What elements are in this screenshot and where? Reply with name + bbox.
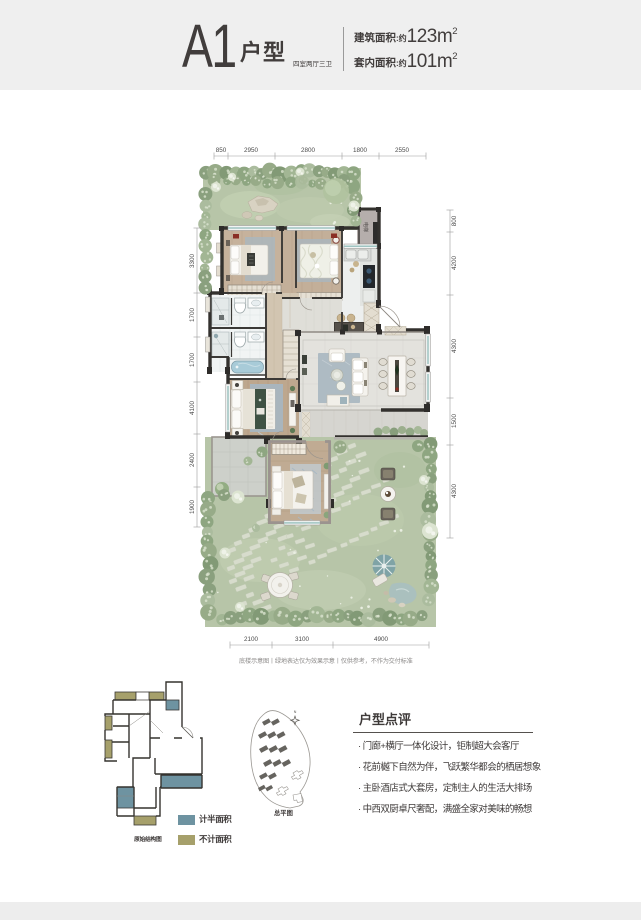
svg-text:1700: 1700 — [189, 308, 196, 323]
svg-text:3300: 3300 — [189, 254, 196, 269]
svg-text:1900: 1900 — [189, 500, 196, 515]
svg-text:2950: 2950 — [244, 147, 259, 154]
svg-text:3100: 3100 — [295, 636, 310, 643]
svg-text:2400: 2400 — [189, 453, 196, 468]
svg-text:2800: 2800 — [301, 147, 316, 154]
svg-text:N: N — [294, 710, 297, 714]
svg-text:电梯: 电梯 — [362, 222, 369, 232]
svg-text:4300: 4300 — [451, 339, 458, 354]
svg-text:1500: 1500 — [451, 414, 458, 429]
svg-text:4200: 4200 — [451, 256, 458, 271]
svg-text:800: 800 — [451, 215, 458, 226]
svg-text:1700: 1700 — [189, 353, 196, 368]
svg-text:850: 850 — [216, 147, 227, 154]
svg-text:2550: 2550 — [395, 147, 410, 154]
svg-text:4900: 4900 — [374, 636, 389, 643]
svg-text:2100: 2100 — [244, 636, 259, 643]
svg-text:4300: 4300 — [451, 484, 458, 499]
svg-text:4100: 4100 — [189, 401, 196, 416]
svg-text:1800: 1800 — [353, 147, 368, 154]
